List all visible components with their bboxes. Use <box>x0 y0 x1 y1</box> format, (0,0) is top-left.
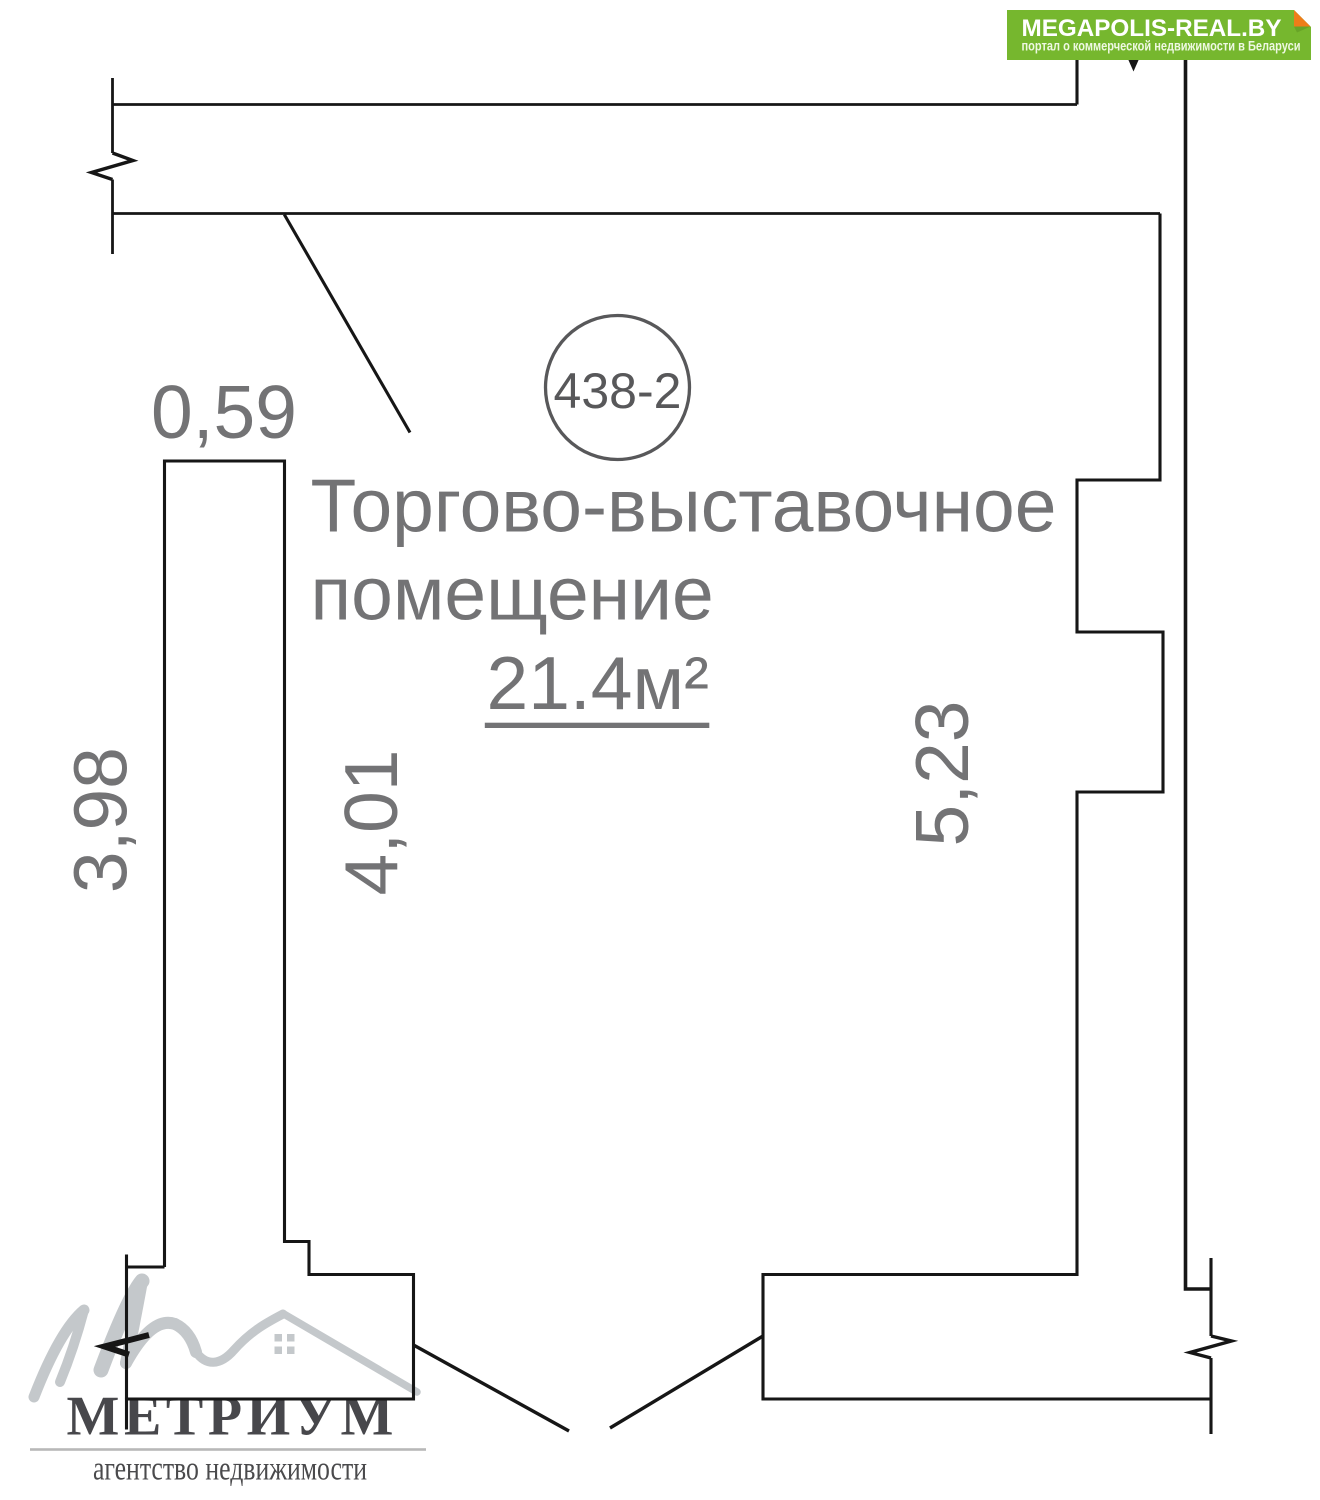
svg-text:помещение: помещение <box>311 552 714 636</box>
svg-text:21.4м²: 21.4м² <box>487 641 710 725</box>
svg-text:агентство недвижимости: агентство недвижимости <box>93 1451 367 1488</box>
svg-text:0,59: 0,59 <box>151 370 297 454</box>
svg-text:МЕТРИУМ: МЕТРИУМ <box>67 1386 398 1448</box>
svg-text:портал о коммерческой недвижим: портал о коммерческой недвижимости в Бел… <box>1022 38 1301 54</box>
svg-text:4,01: 4,01 <box>329 750 413 896</box>
svg-text:438-2: 438-2 <box>554 363 682 419</box>
svg-text:Торгово-выставочное: Торгово-выставочное <box>311 463 1057 547</box>
svg-text:5,23: 5,23 <box>900 701 984 847</box>
svg-text:3,98: 3,98 <box>58 747 142 893</box>
